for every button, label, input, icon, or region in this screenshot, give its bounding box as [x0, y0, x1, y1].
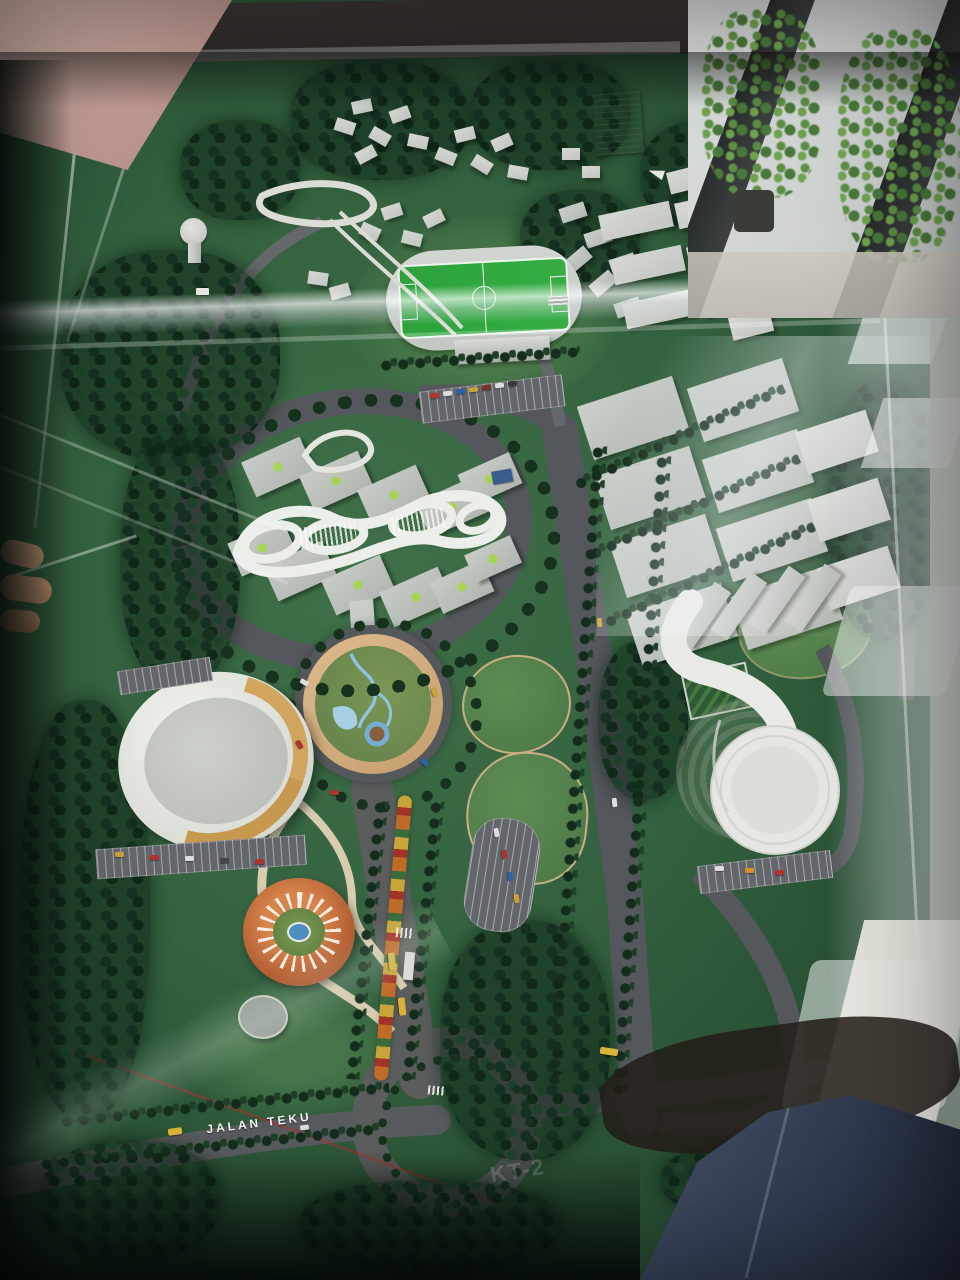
- model-car: [775, 870, 784, 875]
- model-car: [482, 384, 492, 390]
- model-car: [220, 858, 229, 863]
- model-car: [443, 390, 453, 396]
- case-side-shadow-left: [0, 60, 72, 1280]
- model-car: [430, 392, 440, 398]
- plant-pot: [734, 190, 774, 232]
- zebra-crossing: [396, 927, 415, 939]
- top-shadow: [0, 52, 960, 107]
- model-car: [612, 798, 618, 807]
- model-car: [508, 380, 518, 386]
- zebra-crossing: [428, 1085, 445, 1095]
- model-car: [469, 386, 479, 392]
- model-car: [597, 618, 603, 627]
- model-car: [456, 388, 466, 394]
- model-car: [495, 382, 505, 388]
- lobby-floor: [688, 252, 960, 318]
- window-wall: [688, 0, 960, 318]
- model-car: [185, 856, 194, 861]
- model-car: [150, 855, 159, 860]
- lobby-floor-strip: [930, 318, 960, 1018]
- model-car: [715, 866, 724, 871]
- model-car: [745, 868, 754, 873]
- model-car: [330, 790, 339, 795]
- model-car: [255, 859, 264, 864]
- photo-of-campus-scale-model: JALAN TEKU KT-2: [0, 0, 960, 1280]
- bottom-shadow: [0, 1150, 640, 1280]
- model-car: [115, 852, 124, 857]
